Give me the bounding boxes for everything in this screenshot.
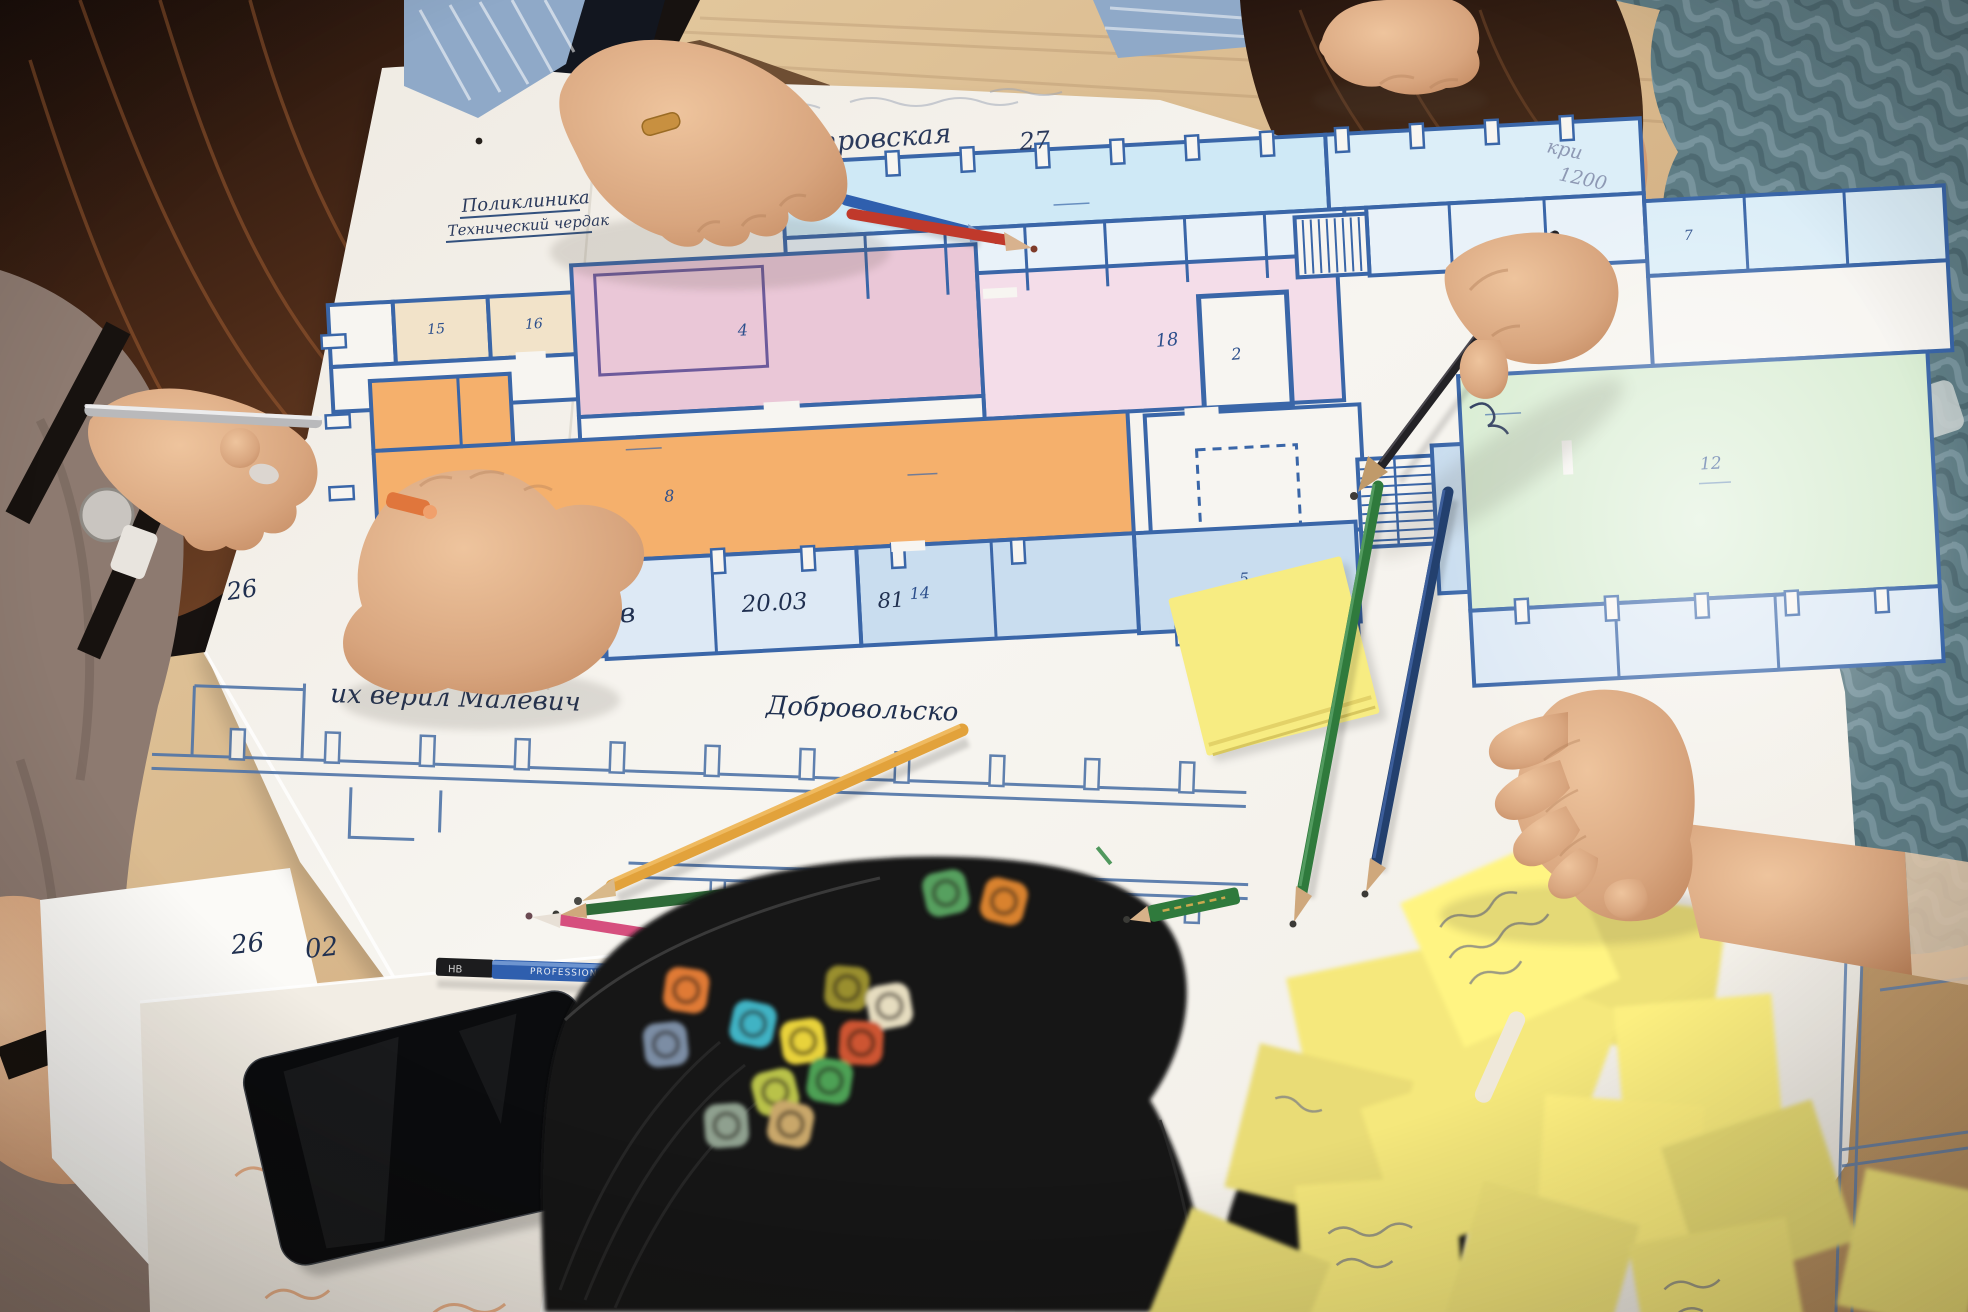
photo-blueprint-worksession: 18 2 15 16 4 8 14 5 7 12 тровская 27 лев…: [0, 0, 1968, 1312]
vignette: [0, 0, 1968, 1312]
photo-canvas: 18 2 15 16 4 8 14 5 7 12 тровская 27 лев…: [0, 0, 1968, 1312]
